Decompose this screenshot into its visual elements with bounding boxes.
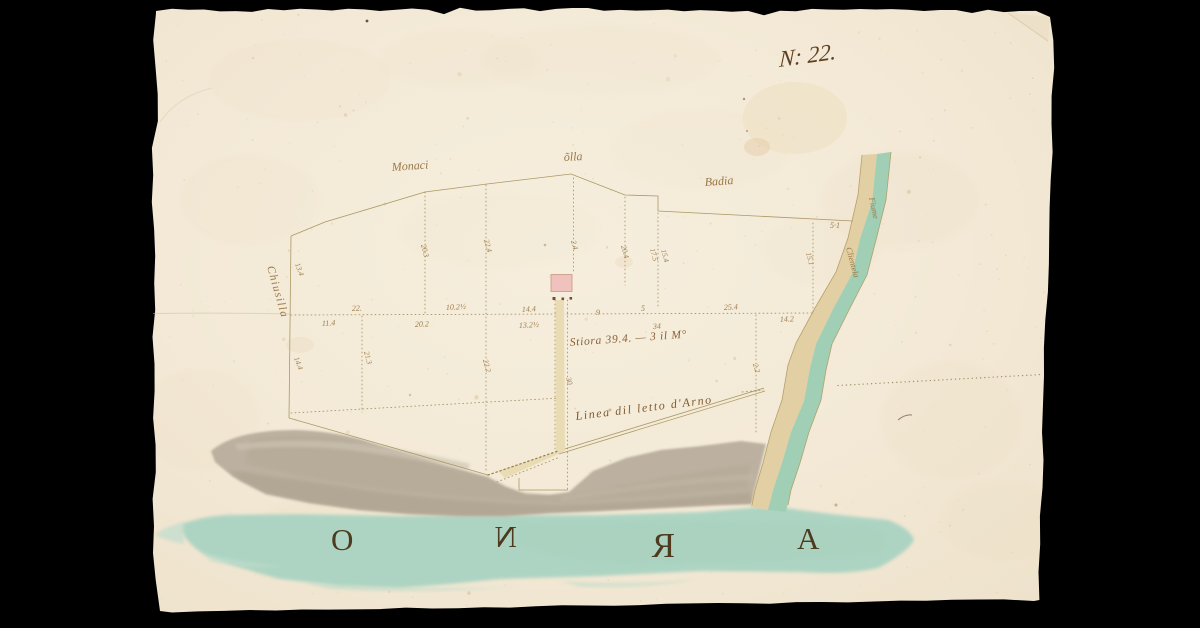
svg-text:A: A bbox=[797, 521, 820, 556]
svg-text:10.2½: 10.2½ bbox=[446, 302, 466, 312]
svg-text:N: N bbox=[495, 519, 517, 554]
svg-text:Badia: Badia bbox=[704, 173, 734, 189]
svg-text:22.: 22. bbox=[352, 303, 362, 313]
svg-text:13.2½: 13.2½ bbox=[519, 320, 539, 330]
svg-text:õlla: õlla bbox=[563, 149, 582, 164]
svg-text:11.4: 11.4 bbox=[322, 318, 336, 328]
svg-text:Monaci: Monaci bbox=[390, 157, 429, 174]
svg-text:25.4: 25.4 bbox=[724, 302, 738, 312]
svg-text:14.2: 14.2 bbox=[780, 314, 794, 324]
svg-text:34: 34 bbox=[652, 322, 661, 331]
svg-text:O: O bbox=[331, 522, 353, 557]
svg-text:5: 5 bbox=[641, 304, 645, 313]
svg-text:5·1: 5·1 bbox=[830, 221, 840, 230]
svg-text:20.2: 20.2 bbox=[415, 319, 429, 329]
svg-text:14.4: 14.4 bbox=[522, 304, 536, 314]
svg-text:9: 9 bbox=[596, 308, 600, 317]
svg-text:R: R bbox=[651, 526, 675, 565]
